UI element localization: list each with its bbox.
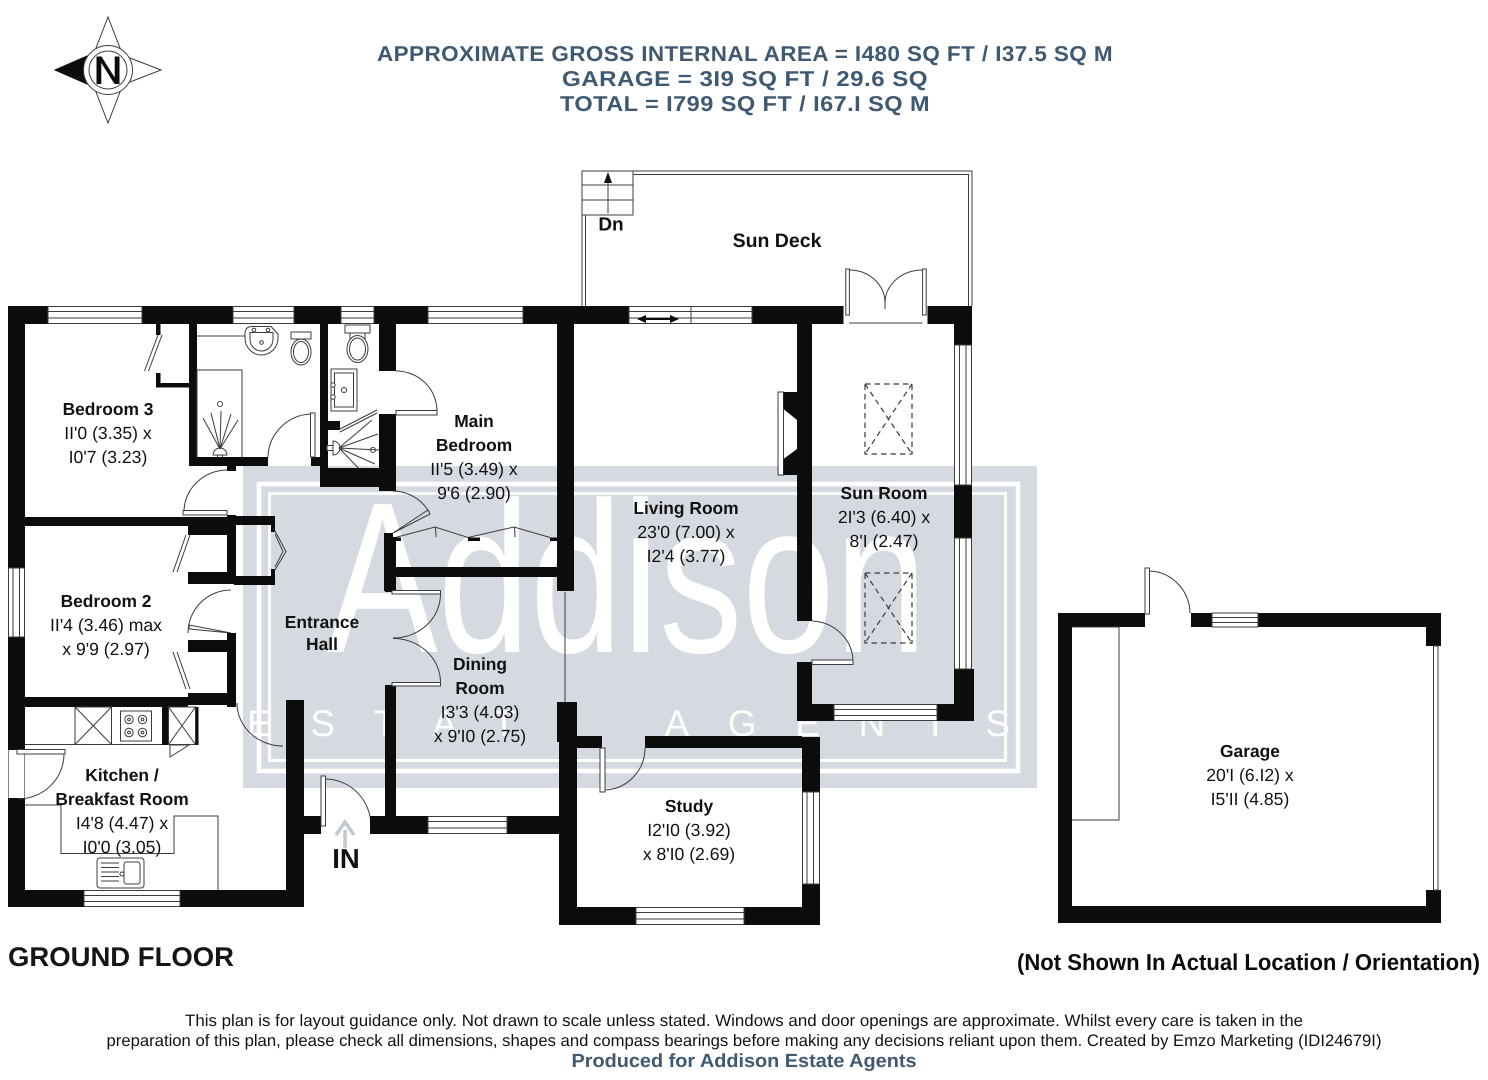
svg-text:x 8'I0 (2.69): x 8'I0 (2.69) xyxy=(643,844,735,864)
svg-text:Hall: Hall xyxy=(306,634,338,654)
svg-text:8'I (2.47): 8'I (2.47) xyxy=(850,531,919,551)
svg-text:I0'7 (3.23): I0'7 (3.23) xyxy=(69,447,148,467)
svg-text:APPROXIMATE GROSS INTERNAL ARE: APPROXIMATE GROSS INTERNAL AREA = I480 S… xyxy=(377,42,1113,66)
svg-text:IN: IN xyxy=(332,843,360,874)
svg-text:Produced for Addison Estate Ag: Produced for Addison Estate Agents xyxy=(572,1051,917,1072)
svg-text:Main: Main xyxy=(454,411,494,431)
svg-text:x 9'9 (2.97): x 9'9 (2.97) xyxy=(62,639,149,659)
svg-text:23'0 (7.00) x: 23'0 (7.00) x xyxy=(637,522,734,542)
svg-text:I5'II (4.85): I5'II (4.85) xyxy=(1211,789,1290,809)
svg-text:Bedroom: Bedroom xyxy=(436,435,512,455)
svg-text:I4'8 (4.47) x: I4'8 (4.47) x xyxy=(76,813,169,833)
svg-text:Bedroom 2: Bedroom 2 xyxy=(61,591,152,611)
svg-text:This plan is for layout guidan: This plan is for layout guidance only. N… xyxy=(185,1011,1303,1030)
svg-text:Sun Deck: Sun Deck xyxy=(733,230,822,252)
svg-text:Breakfast Room: Breakfast Room xyxy=(55,789,188,809)
svg-text:II'5 (3.49) x: II'5 (3.49) x xyxy=(430,459,518,479)
svg-text:9'6 (2.90): 9'6 (2.90) xyxy=(437,483,511,503)
svg-text:Entrance: Entrance xyxy=(285,612,360,632)
svg-text:I2'I0 (3.92): I2'I0 (3.92) xyxy=(647,820,731,840)
svg-text:TOTAL = I799 SQ FT / I67.I SQ: TOTAL = I799 SQ FT / I67.I SQ M xyxy=(560,92,930,116)
svg-text:Dining: Dining xyxy=(453,654,507,674)
svg-text:Garage: Garage xyxy=(1220,741,1280,761)
svg-text:GROUND FLOOR: GROUND FLOOR xyxy=(8,942,234,972)
svg-text:II'4 (3.46) max: II'4 (3.46) max xyxy=(50,615,162,635)
svg-text:I3'3 (4.03): I3'3 (4.03) xyxy=(441,702,520,722)
svg-text:GARAGE = 3I9 SQ FT / 29.6 SQ: GARAGE = 3I9 SQ FT / 29.6 SQ xyxy=(562,67,928,91)
svg-text:20'I (6.I2) x: 20'I (6.I2) x xyxy=(1206,765,1294,785)
svg-text:II'0 (3.35) x: II'0 (3.35) x xyxy=(64,423,152,443)
svg-text:I2'4 (3.77): I2'4 (3.77) xyxy=(647,546,726,566)
svg-text:preparation of this plan, plea: preparation of this plan, please check a… xyxy=(107,1031,1382,1050)
svg-text:Kitchen /: Kitchen / xyxy=(85,765,159,785)
svg-text:Living Room: Living Room xyxy=(633,498,738,518)
svg-text:Bedroom 3: Bedroom 3 xyxy=(63,399,154,419)
svg-text:Dn: Dn xyxy=(598,215,623,236)
svg-text:Study: Study xyxy=(665,796,714,816)
svg-text:Sun Room: Sun Room xyxy=(841,483,928,503)
svg-text:2I'3 (6.40) x: 2I'3 (6.40) x xyxy=(838,507,931,527)
svg-text:x 9'I0 (2.75): x 9'I0 (2.75) xyxy=(434,726,526,746)
svg-text:(Not Shown In Actual Location: (Not Shown In Actual Location / Orientat… xyxy=(1017,949,1480,975)
svg-text:Room: Room xyxy=(455,678,504,698)
svg-text:I0'0 (3.05): I0'0 (3.05) xyxy=(83,837,162,857)
